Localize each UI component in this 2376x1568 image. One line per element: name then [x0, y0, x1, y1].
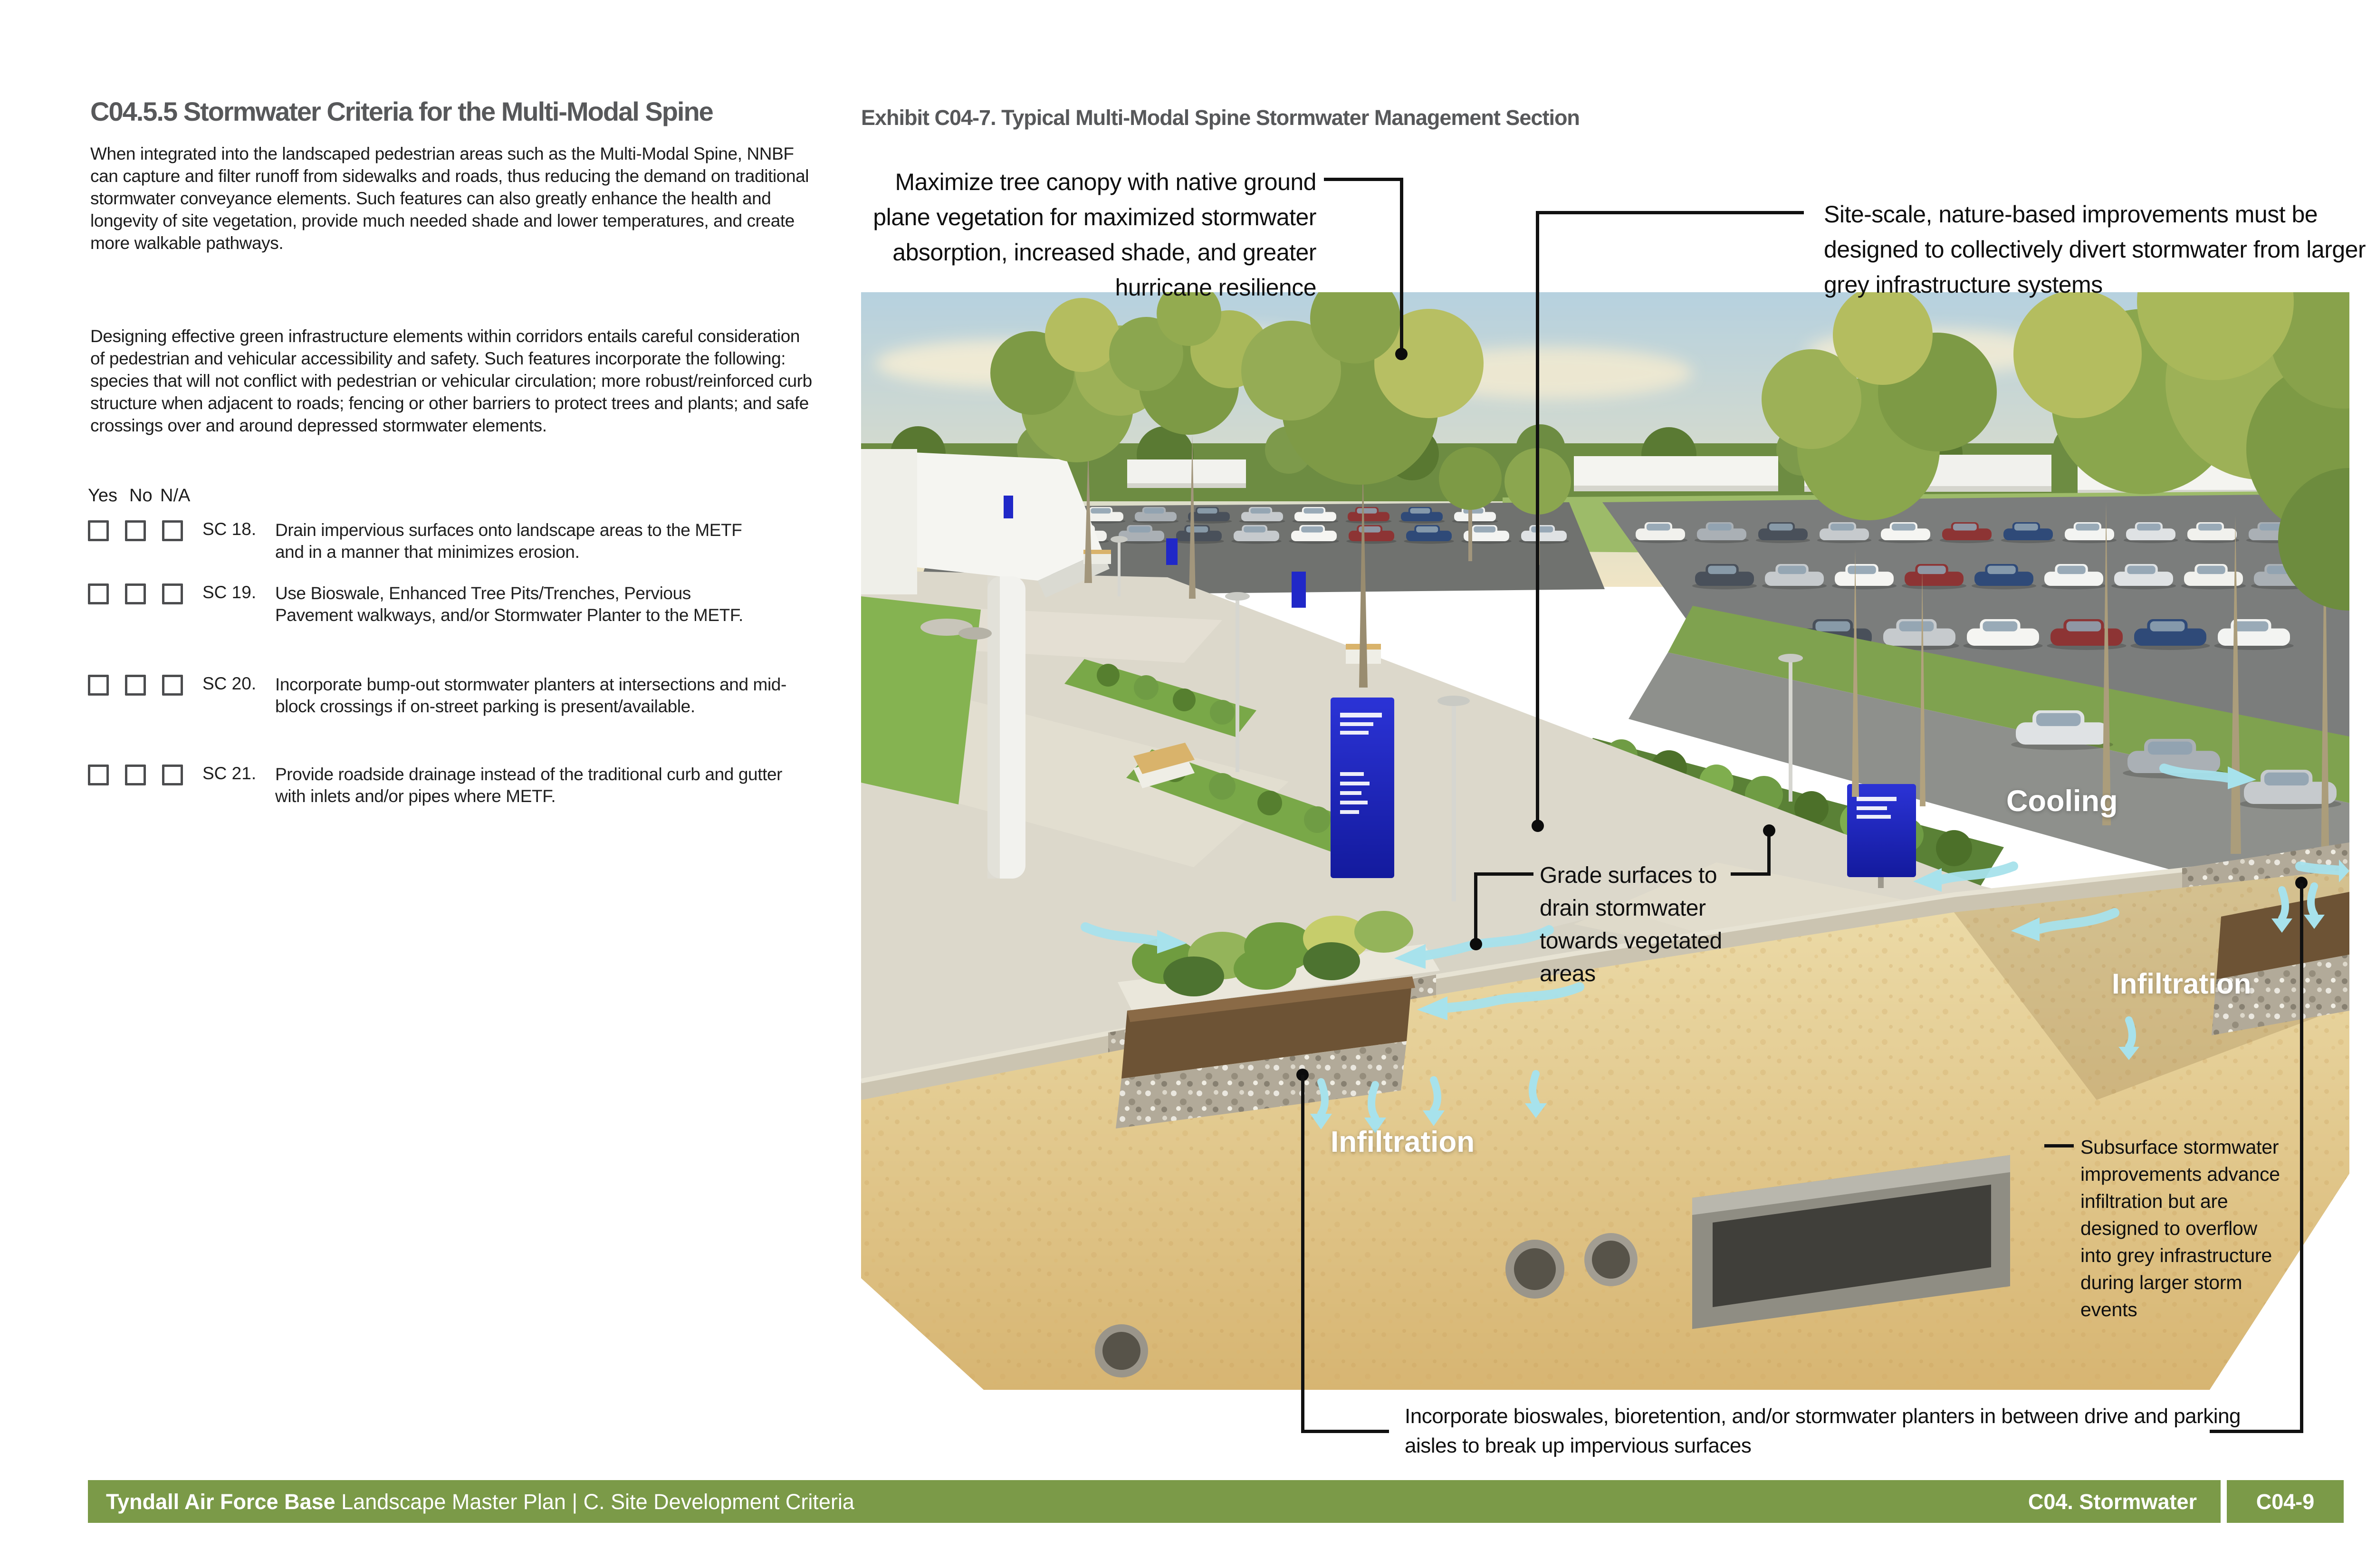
checkbox-sc18-na[interactable] [162, 520, 183, 541]
checkbox-sc19-no[interactable] [125, 583, 146, 604]
checkbox-sc20-na[interactable] [162, 675, 183, 696]
callout-line [1301, 1075, 1304, 1433]
checkbox-sc18-yes[interactable] [88, 520, 109, 541]
callout-line [1400, 178, 1403, 354]
callout-line [1324, 178, 1403, 181]
criterion-id: SC 18. [202, 519, 256, 539]
document-page: C04.5.5 Stormwater Criteria for the Mult… [0, 0, 2376, 1568]
criterion-id: SC 21. [202, 764, 256, 784]
column-header-na: N/A [160, 486, 190, 506]
exhibit-title: Exhibit C04-7. Typical Multi-Modal Spine… [861, 105, 2097, 130]
criterion-text: Use Bioswale, Enhanced Tree Pits/Trenche… [275, 583, 755, 626]
annotation-bioswales: Incorporate bioswales, bioretention, and… [1405, 1402, 2260, 1461]
column-header-yes: Yes [88, 486, 117, 506]
callout-line [1474, 872, 1533, 876]
label-cooling: Cooling [2006, 784, 2117, 818]
footer-bar: Tyndall Air Force Base Landscape Master … [88, 1480, 2221, 1523]
section-heading: C04.5.5 Stormwater Criteria for the Mult… [90, 98, 860, 126]
label-infiltration-right: Infiltration [2112, 967, 2251, 1000]
callout-line [2044, 1144, 2074, 1147]
callout-line [1474, 872, 1477, 945]
callout-dot [1763, 824, 1775, 837]
checkbox-sc21-no[interactable] [125, 765, 146, 785]
checkbox-sc20-yes[interactable] [88, 675, 109, 696]
callout-dot [1470, 938, 1482, 950]
label-infiltration-left: Infiltration [1331, 1125, 1475, 1159]
checkbox-sc19-yes[interactable] [88, 583, 109, 604]
callout-line [1538, 211, 1804, 214]
footer-section: C04. Stormwater [2028, 1480, 2197, 1523]
annotation-tree-canopy: Maximize tree canopy with native ground … [836, 164, 1316, 305]
criterion-text: Incorporate bump-out stormwater planters… [275, 674, 788, 717]
callout-dot [1395, 348, 1408, 360]
callout-line [1301, 1430, 1389, 1433]
callout-line [2210, 1430, 2303, 1433]
paragraph-2: Designing effective green infrastructure… [90, 325, 813, 437]
callout-dot [1532, 820, 1544, 832]
callout-line [1767, 831, 1771, 876]
paragraph-1: When integrated into the landscaped pede… [90, 143, 813, 254]
footer-page-number: C04-9 [2227, 1480, 2344, 1523]
footer-title: Tyndall Air Force Base Landscape Master … [106, 1480, 854, 1523]
annotation-grade-surfaces: Grade surfaces to drain stormwater towar… [1540, 859, 1744, 990]
footer-doc: Landscape Master Plan | C. Site Developm… [335, 1490, 854, 1514]
callout-line [2300, 883, 2303, 1433]
checkbox-sc19-na[interactable] [162, 583, 183, 604]
criterion-text: Drain impervious surfaces onto landscape… [275, 519, 755, 563]
annotation-site-scale: Site-scale, nature-based improvements mu… [1824, 197, 2376, 302]
callout-line [1536, 211, 1539, 826]
footer-org: Tyndall Air Force Base [106, 1490, 335, 1514]
checkbox-sc21-yes[interactable] [88, 765, 109, 785]
checkbox-sc20-no[interactable] [125, 675, 146, 696]
checkbox-sc21-na[interactable] [162, 765, 183, 785]
criterion-id: SC 20. [202, 674, 256, 694]
checkbox-sc18-no[interactable] [125, 520, 146, 541]
callout-line [1731, 872, 1771, 876]
criterion-id: SC 19. [202, 583, 256, 602]
footer-page-badge: C04-9 [2227, 1480, 2344, 1523]
annotation-subsurface: Subsurface stormwater improvements advan… [2080, 1134, 2282, 1323]
criterion-text: Provide roadside drainage instead of the… [275, 764, 788, 807]
column-header-no: No [129, 486, 153, 506]
